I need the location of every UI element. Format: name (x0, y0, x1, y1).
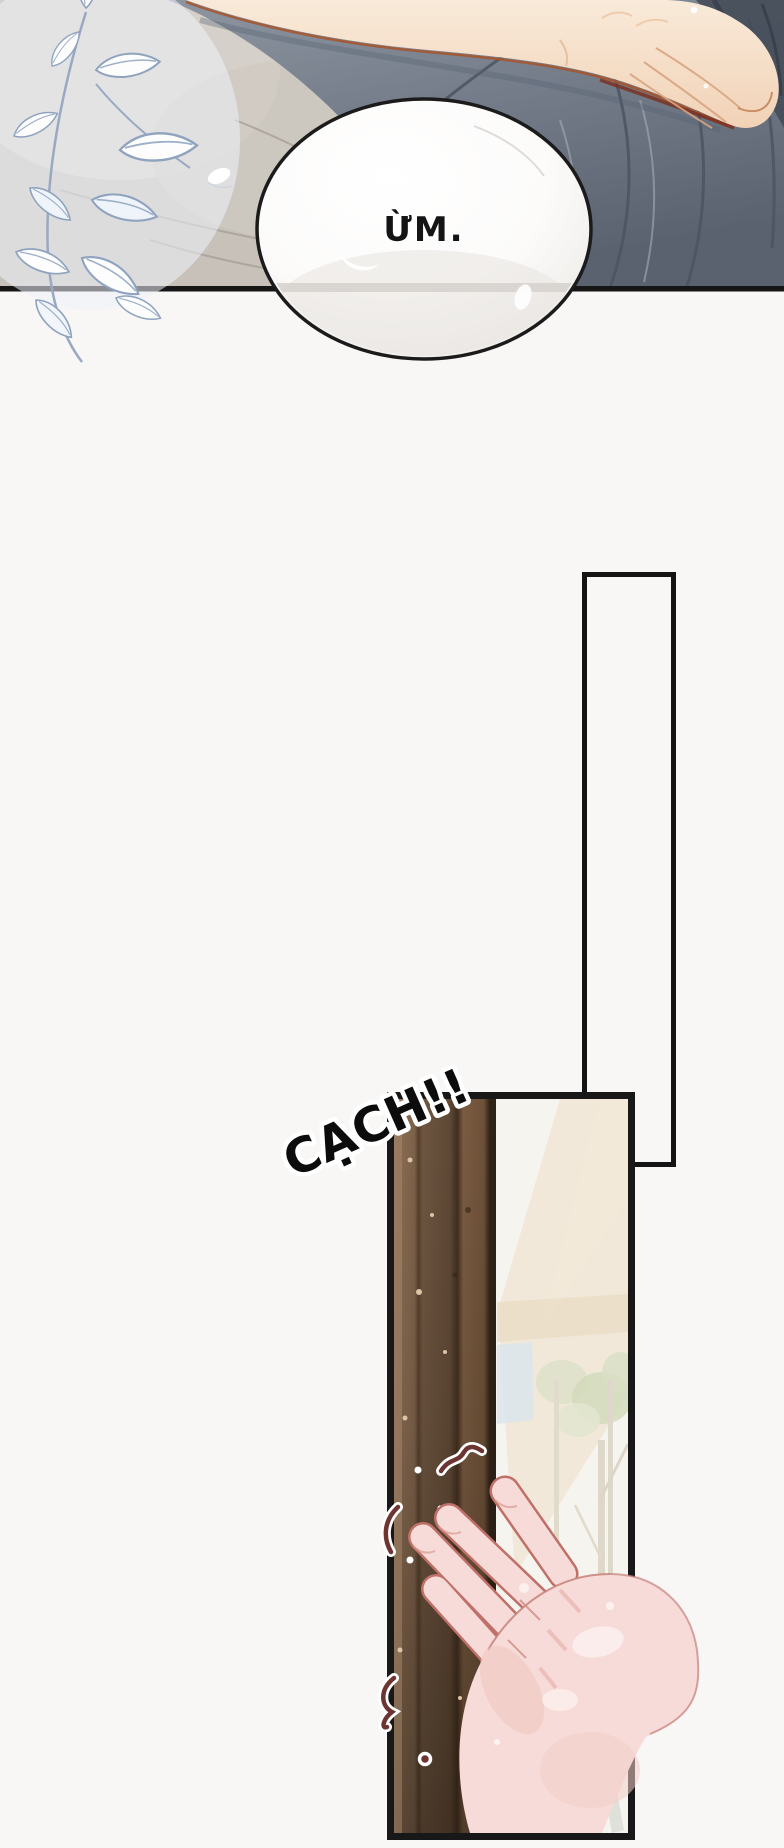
hand-highlight (542, 1689, 578, 1711)
bubble-lower-shade (274, 250, 574, 370)
sparkle-dot (704, 84, 709, 89)
comic-page: ỪM. (0, 0, 784, 1848)
panel-door-opening (383, 1096, 698, 1837)
door-wood-highlight (394, 1099, 402, 1833)
speech-bubble: ỪM. (257, 99, 591, 370)
door-frame-rect (585, 575, 674, 1165)
hand-highlight (519, 1583, 529, 1593)
hand-shading (540, 1732, 640, 1808)
bubble-panel-line-showthrough (258, 283, 590, 292)
comic-art: ỪM. (0, 0, 784, 1848)
sky-patch (497, 1342, 534, 1424)
foliage (556, 1403, 600, 1437)
tremble-dot (420, 1754, 431, 1765)
hand-highlight (494, 1739, 500, 1745)
hand-highlight (606, 1602, 614, 1610)
sparkle-dot (691, 7, 698, 14)
leaf-spray (0, 0, 240, 362)
door-frame-outline (585, 575, 674, 1165)
speech-bubble-text: ỪM. (383, 209, 464, 250)
